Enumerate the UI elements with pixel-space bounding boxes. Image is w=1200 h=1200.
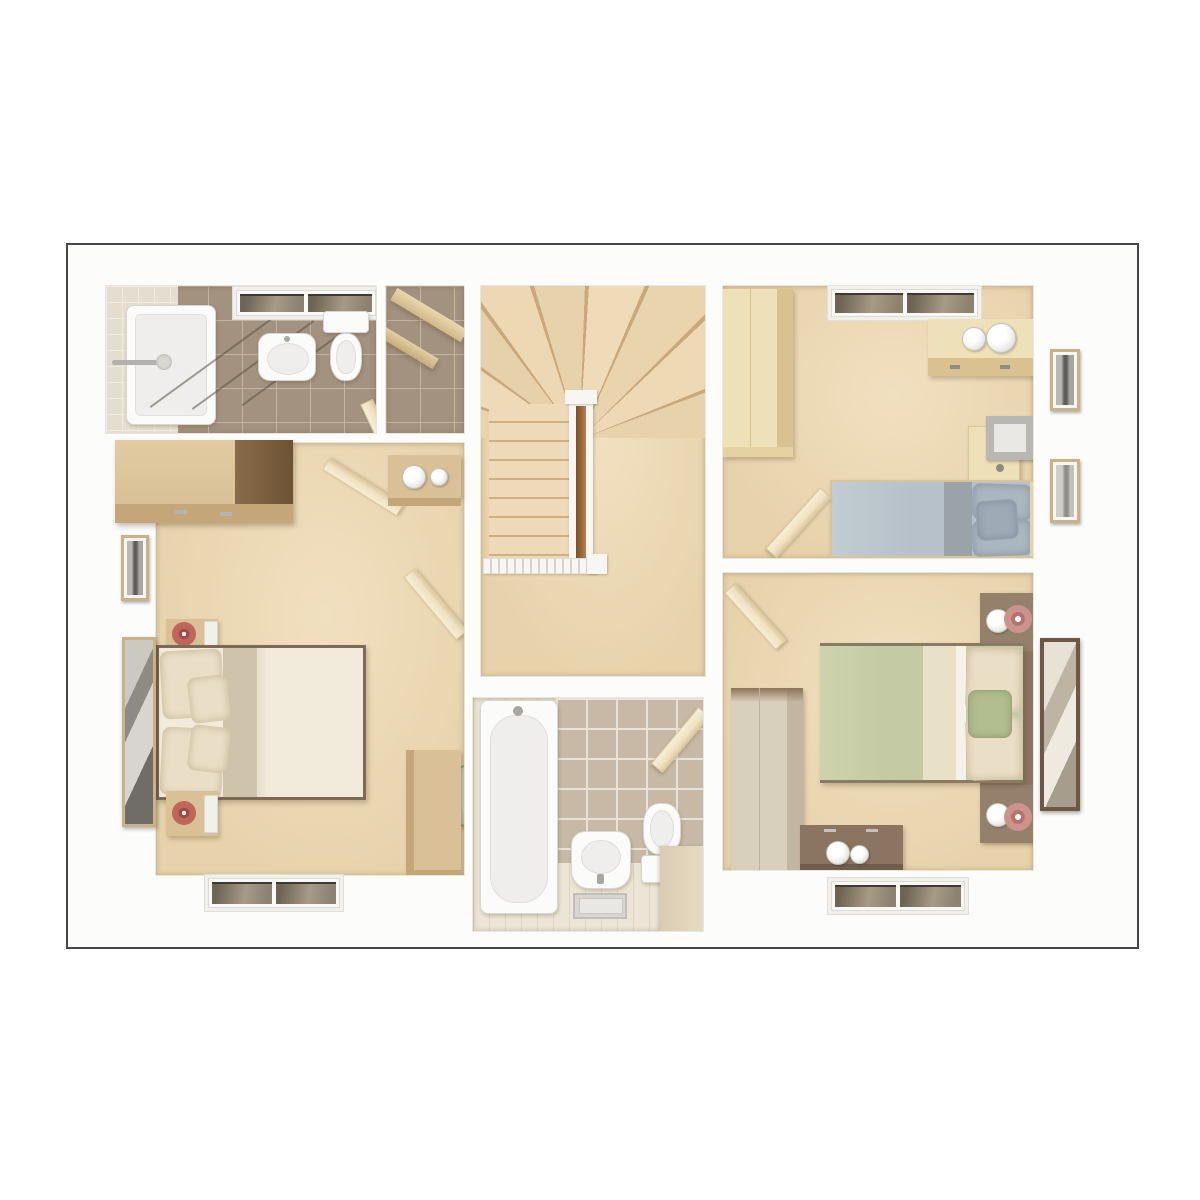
bathroom-shelf-ledge [660,846,703,931]
bed-fold [223,648,257,797]
bed-duvet [832,482,944,556]
banister [569,398,593,568]
room-bedroom-3 [723,573,1033,870]
basin-tap [284,336,290,342]
bedroom2-desk [968,416,1033,482]
wardrobe-side [235,440,293,504]
wardrobe-bevel [731,688,803,702]
chest-handle [824,829,836,832]
master-bedside-table-top [166,619,218,647]
floorplan-page [0,0,1200,1200]
wardrobe-seam [759,688,760,870]
room-landing [481,286,705,676]
ensuite-washbasin [258,333,316,381]
master-wall-mirror [122,637,156,827]
newel-post [565,390,597,404]
basin-bowl [267,343,309,375]
toilet-seat [336,340,356,374]
master-bed [156,645,366,800]
bath-mat [573,893,627,919]
window-pane [900,885,961,907]
ensuite-toilet [323,311,369,381]
bedroom2-picture-frame [1050,349,1080,411]
bed-fold-cream [923,646,956,780]
window-pane [212,882,272,904]
handrail-wood [576,406,586,558]
chest-front [928,358,1033,376]
master-display-shelf [388,455,461,498]
cupboard-shelf [386,327,439,369]
bed-duvet-green [820,646,923,780]
pedestal-basin [571,831,631,889]
spindle-rail [483,558,597,574]
table-lamp [962,327,986,351]
wardrobe-top [115,440,235,504]
wardrobe-front [723,447,793,457]
ensuite-door-leaf [360,399,376,433]
window-pane [907,293,975,313]
bedroom2-window [831,289,978,317]
master-door-leaf [403,568,464,640]
white-bowl [430,468,448,486]
room-bedroom-2 [723,286,1033,558]
toilet-cistern [323,311,369,333]
shower-head [156,354,172,370]
chest-front [800,864,903,870]
master-bedside-table-bottom [166,791,218,836]
shelf-front-edge [388,498,461,506]
basin-tap [597,874,604,884]
bedroom3-wardrobe [731,688,803,870]
wardrobe-seam [750,289,751,457]
bed-fold [944,482,972,556]
master-window [208,878,340,908]
bed-duvet [257,648,363,797]
master-picture-frame [121,535,149,601]
table-lamp [986,323,1016,353]
bed-accent-pillow [186,724,231,775]
room-bathroom [473,698,703,931]
newel-post [587,554,607,574]
bedroom3-wall-mirror [1040,638,1080,811]
window-pane [308,294,372,312]
bedroom2-picture-frame [1050,459,1080,523]
bedroom2-chest [928,319,1033,376]
shower-fitting-icon [112,348,168,378]
chest-handle [866,829,878,832]
bedroom2-single-bed [830,480,1033,558]
bath-tub-inner [490,715,548,903]
window-pane [276,882,336,904]
bath-mat-inner [579,898,623,914]
bedroom2-door-leaf [765,488,831,558]
bed-accent-pillow-green [968,690,1012,738]
toilet-bowl [330,333,362,381]
wardrobe-handle [175,510,187,514]
stairs-straight-flight [489,404,571,568]
cupboard-shelf [390,288,464,342]
room-ensuite [106,286,376,433]
window-pane [835,293,903,313]
flower-red [172,622,196,646]
bedroom3-door-leaf [724,583,787,650]
bedside-drawer-front [204,621,218,647]
bed-headboard [1030,482,1033,556]
desk-knob [996,464,1004,472]
bedroom3-window [831,881,965,911]
window-pane [835,885,896,907]
chest-handle [1000,365,1010,369]
bedside-drawer-front [204,795,218,833]
flower-pink [1004,803,1032,831]
white-pot [850,845,869,864]
bath-tap [513,706,523,716]
bed-sheet-line [956,646,966,780]
floorplan-frame [66,243,1139,949]
toilet-seat [650,810,674,848]
wardrobe-handle [220,512,232,516]
basin-bowl [581,840,621,874]
white-pot [826,841,850,865]
room-airing-cupboard [386,286,464,433]
window-pane [240,294,304,312]
master-wardrobe [115,440,293,523]
desk-edge [406,870,461,875]
wardrobe-front [115,504,293,523]
white-bowl [402,465,426,489]
chest-handle [950,365,960,369]
dressing-desk [406,750,461,875]
picture-art [1056,465,1074,517]
picture-art [1056,355,1074,405]
bed-accent-pillow [186,674,231,725]
bedroom3-double-bed [820,643,1023,783]
picture-art [127,541,143,595]
bedroom2-wardrobe [723,289,793,457]
flower-pink [1004,605,1032,633]
bedroom3-chest [800,825,903,870]
bath [480,700,558,914]
bed-accent-pillow [975,499,1020,542]
flower-red [172,801,196,825]
desk-shelf-inner [994,424,1026,452]
